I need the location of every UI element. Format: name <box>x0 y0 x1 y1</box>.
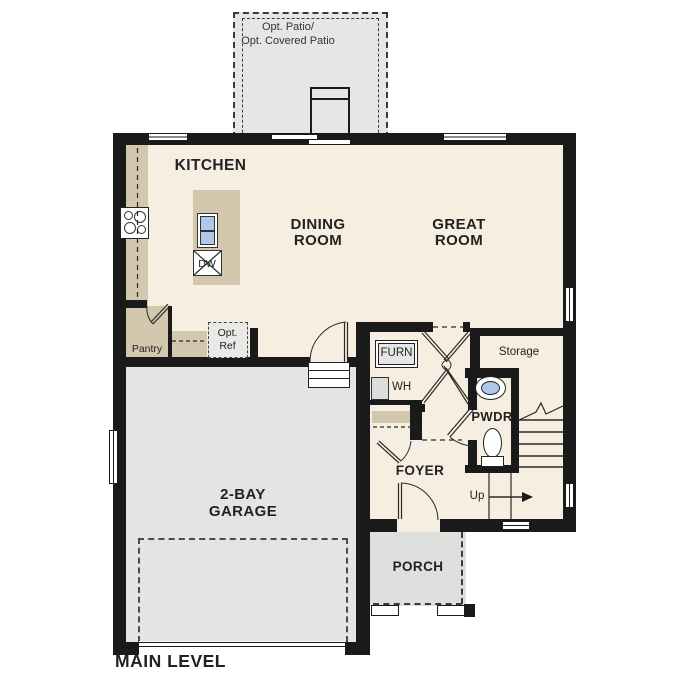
garage-entry-steps <box>308 362 350 388</box>
wall-pantry-east <box>168 306 172 357</box>
step-tread <box>309 370 349 371</box>
chimney-divider-line <box>312 89 348 100</box>
floor-plan: DW Opt. Ref FURN WH <box>0 0 687 687</box>
window-stair-landing <box>565 483 574 508</box>
porch-dashed-edge-right <box>461 532 463 604</box>
wall-furn-closet-stub <box>416 404 425 412</box>
plan-title: MAIN LEVEL <box>115 651 315 672</box>
powder-sink-basin <box>481 381 500 395</box>
garage-door-setback-dashed-outline <box>138 538 348 642</box>
powder-sink <box>475 376 506 400</box>
dishwasher: DW <box>193 250 222 276</box>
furnace-label: FURN <box>379 347 414 359</box>
garage-door-panel <box>139 642 345 647</box>
room-label-great-room: GREAT ROOM <box>419 217 499 249</box>
wall-exterior-front <box>356 519 576 532</box>
window-front <box>502 521 530 530</box>
step-tread <box>309 378 349 379</box>
room-label-garage: 2-BAY GARAGE <box>198 486 288 520</box>
room-label-foyer: FOYER <box>390 463 450 478</box>
water-heater-label: WH <box>392 381 418 393</box>
front-door-opening <box>397 519 440 532</box>
sliding-door-panel-inner <box>308 139 351 145</box>
burner-icon <box>124 222 136 234</box>
main-floor-area <box>126 145 563 357</box>
window-garage-left <box>109 430 118 484</box>
wall-garage-east <box>356 322 370 655</box>
window-great-room-top <box>443 133 507 141</box>
fireplace-chimney <box>310 87 350 138</box>
porch-corner-post <box>464 604 475 617</box>
wall-ref-nook-stub <box>250 328 258 358</box>
wall-storage-north <box>470 328 563 336</box>
patio-label-line2: Opt. Covered Patio <box>227 34 349 48</box>
stairs-up-label: Up <box>466 490 488 502</box>
furnace: FURN <box>375 340 418 368</box>
window-kitchen <box>148 133 188 141</box>
room-label-kitchen: KITCHEN <box>168 157 253 175</box>
optional-refrigerator: Opt. Ref <box>208 322 248 358</box>
sink-basin <box>200 216 215 231</box>
furnace-inner-box: FURN <box>378 343 415 365</box>
toilet-tank <box>481 456 504 467</box>
wall-pantry-north <box>113 300 147 308</box>
water-heater <box>371 377 389 400</box>
burner-icon <box>134 211 146 223</box>
toilet-bowl <box>483 428 502 458</box>
patio-label-line1: Opt. Patio/ <box>227 20 349 34</box>
dishwasher-label: DW <box>195 258 219 270</box>
porch-post-right <box>437 605 465 616</box>
optional-refrigerator-label: Opt. Ref <box>209 327 246 353</box>
room-label-dining: DINING ROOM <box>278 217 358 249</box>
room-label-storage: Storage <box>494 346 544 358</box>
porch-post-left <box>371 605 399 616</box>
sink-basin <box>200 231 215 245</box>
room-label-pantry: Pantry <box>126 343 168 355</box>
window-great-room-right <box>565 287 574 322</box>
room-label-porch: PORCH <box>388 559 448 574</box>
counter-block <box>172 331 207 357</box>
hall-cased-opening <box>433 322 463 332</box>
cooktop <box>120 207 149 239</box>
burner-icon <box>137 225 146 234</box>
room-label-powder: PWDR <box>467 409 517 424</box>
wall-exterior-right <box>563 133 576 532</box>
burner-icon <box>124 211 133 220</box>
island-sink <box>197 213 218 248</box>
